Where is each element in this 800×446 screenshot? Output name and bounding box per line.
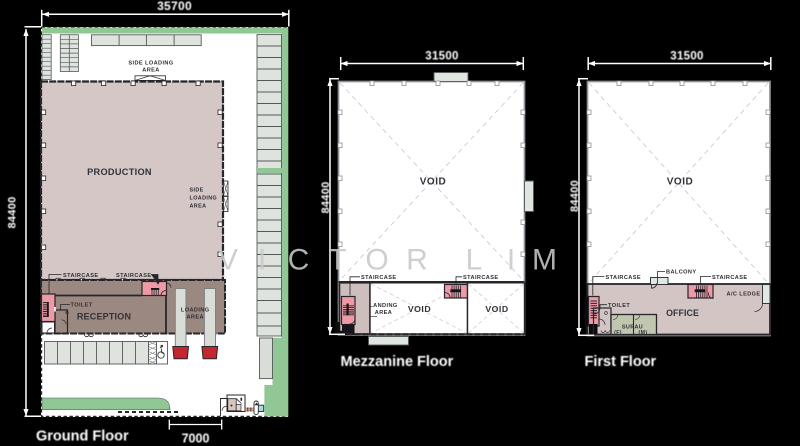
- svg-text:31500: 31500: [425, 51, 458, 63]
- svg-text:LOADING: LOADING: [190, 196, 218, 202]
- svg-text:VOID: VOID: [420, 177, 446, 188]
- svg-text:31500: 31500: [670, 51, 703, 63]
- svg-text:AREA: AREA: [186, 315, 203, 321]
- svg-text:A/C LEDGE: A/C LEDGE: [727, 292, 761, 298]
- svg-text:(F): (F): [614, 330, 622, 336]
- svg-text:STAIRCASE: STAIRCASE: [63, 273, 99, 279]
- svg-text:VOID: VOID: [408, 304, 431, 314]
- svg-text:84400: 84400: [320, 181, 332, 213]
- svg-text:C: C: [288, 244, 310, 277]
- svg-text:SIDE LOADING: SIDE LOADING: [128, 61, 173, 67]
- svg-text:TOILET: TOILET: [71, 303, 93, 309]
- svg-text:First Floor: First Floor: [585, 354, 657, 370]
- svg-text:Ground Floor: Ground Floor: [36, 429, 129, 445]
- svg-text:L: L: [466, 244, 483, 277]
- svg-text:LOADING: LOADING: [181, 308, 210, 314]
- svg-text:M: M: [532, 244, 557, 277]
- svg-text:I: I: [507, 244, 515, 277]
- svg-text:84400: 84400: [569, 180, 581, 212]
- svg-text:STAIRCASE: STAIRCASE: [712, 275, 748, 281]
- svg-text:7000: 7000: [182, 432, 210, 446]
- svg-text:STAIRCASE: STAIRCASE: [116, 273, 152, 279]
- svg-text:STAIRCASE: STAIRCASE: [606, 275, 642, 281]
- svg-text:VOID: VOID: [667, 177, 693, 188]
- svg-text:T: T: [328, 244, 346, 277]
- svg-text:V: V: [218, 244, 238, 277]
- svg-text:RECEPTION: RECEPTION: [77, 312, 131, 322]
- svg-text:BALCONY: BALCONY: [666, 270, 696, 276]
- svg-text:OFFICE: OFFICE: [666, 308, 699, 318]
- svg-text:AREA: AREA: [142, 68, 159, 74]
- svg-text:PRODUCTION: PRODUCTION: [87, 167, 152, 177]
- svg-text:O: O: [365, 244, 388, 277]
- svg-text:(M): (M): [639, 330, 648, 336]
- svg-text:SIDE: SIDE: [190, 188, 204, 194]
- svg-text:VOID: VOID: [485, 304, 508, 314]
- svg-text:AREA: AREA: [375, 310, 392, 316]
- svg-text:84400: 84400: [7, 196, 19, 228]
- svg-text:R: R: [406, 244, 428, 277]
- svg-text:I: I: [258, 244, 266, 277]
- svg-text:TOILET: TOILET: [608, 303, 630, 309]
- svg-text:Mezzanine Floor: Mezzanine Floor: [341, 354, 454, 370]
- svg-text:35700: 35700: [157, 0, 192, 13]
- svg-text:AREA: AREA: [190, 204, 207, 210]
- svg-text:LANDING: LANDING: [369, 303, 397, 309]
